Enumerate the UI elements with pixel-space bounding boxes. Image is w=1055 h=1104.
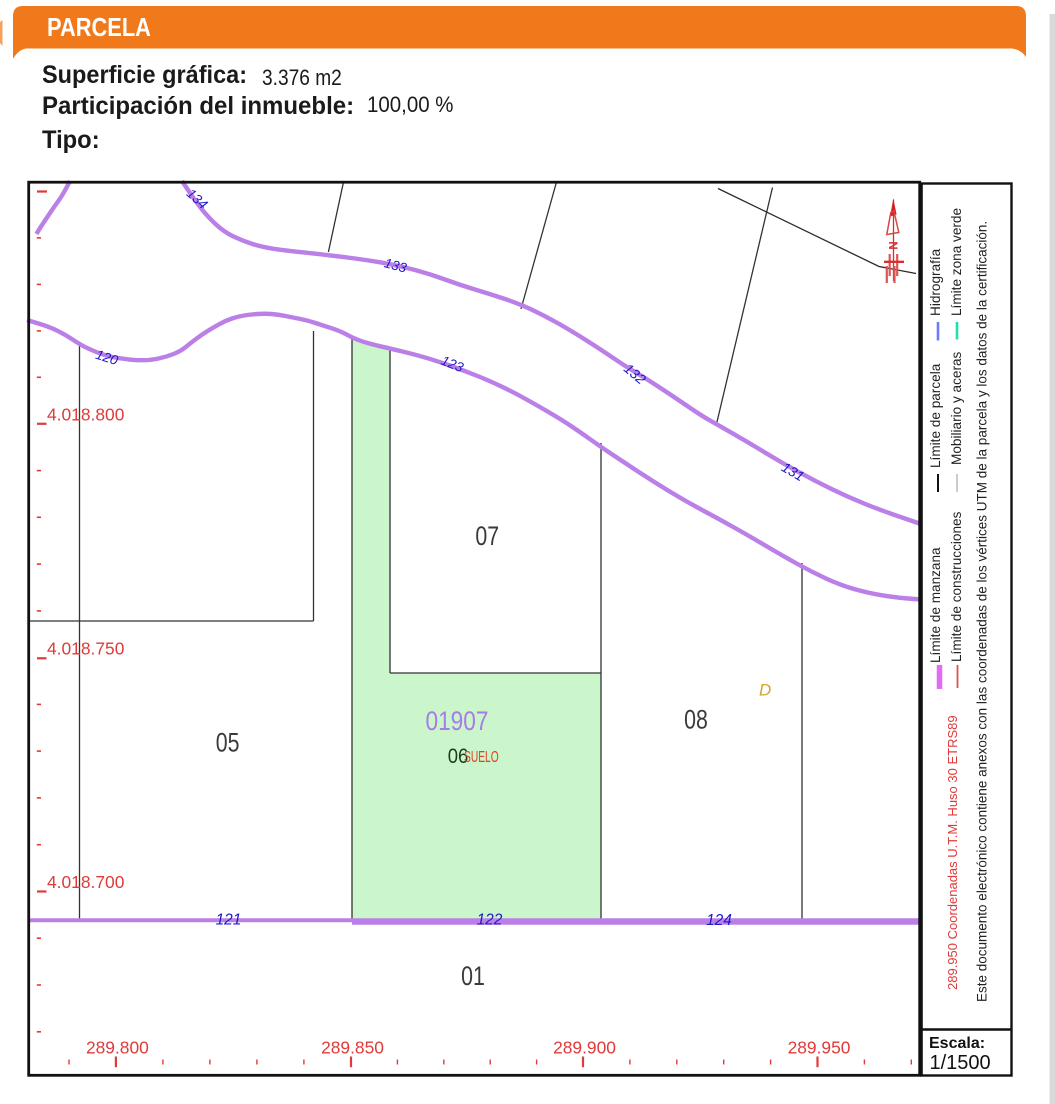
svg-text:07: 07	[475, 522, 499, 552]
svg-text:Límite de construcciones: Límite de construcciones	[949, 511, 964, 662]
svg-text:1/1500: 1/1500	[930, 1052, 991, 1074]
svg-text:Hidrografía: Hidrografía	[928, 248, 943, 316]
svg-text:Escala:: Escala:	[929, 1035, 985, 1052]
svg-text:289.900: 289.900	[553, 1038, 616, 1058]
svg-text:08: 08	[684, 705, 708, 735]
svg-text:4.018.750: 4.018.750	[47, 638, 124, 658]
svg-text:05: 05	[216, 728, 240, 758]
svg-text:Este documento electrónico con: Este documento electrónico contiene anex…	[975, 221, 990, 1002]
svg-text:124: 124	[706, 912, 732, 929]
svg-text:Límite de manzana: Límite de manzana	[928, 547, 943, 663]
svg-text:SUELO: SUELO	[464, 748, 499, 766]
svg-text:Límite zona verde: Límite zona verde	[949, 208, 964, 316]
svg-text:133: 133	[383, 255, 409, 275]
svg-text:01: 01	[461, 962, 485, 992]
svg-text:Límite de parcela: Límite de parcela	[928, 363, 943, 468]
svg-text:4.018.700: 4.018.700	[47, 872, 124, 892]
svg-text:01907: 01907	[425, 706, 488, 736]
svg-text:Mobiliario y aceras: Mobiliario y aceras	[949, 351, 964, 465]
svg-text:289.850: 289.850	[321, 1038, 384, 1058]
svg-text:D: D	[759, 681, 771, 700]
svg-text:289.800: 289.800	[86, 1038, 149, 1058]
svg-text:4.018.800: 4.018.800	[47, 405, 124, 425]
svg-text:122: 122	[477, 912, 503, 929]
svg-text:289.950 Coordenadas U.T.M. Hus: 289.950 Coordenadas U.T.M. Huso 30 ETRS8…	[945, 715, 960, 990]
svg-text:121: 121	[216, 912, 242, 929]
svg-text:N: N	[888, 241, 900, 249]
svg-text:120: 120	[94, 347, 121, 368]
svg-text:289.950: 289.950	[788, 1038, 851, 1058]
